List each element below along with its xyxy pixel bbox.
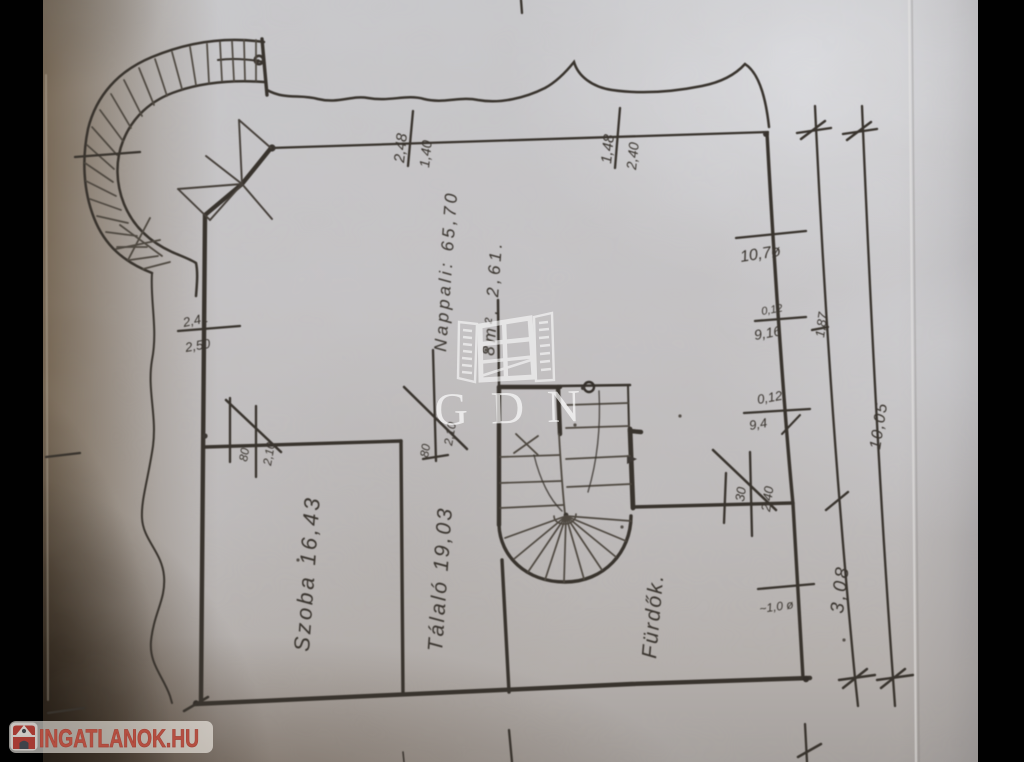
svg-text:9,4: 9,4 — [748, 415, 768, 433]
svg-text:1,40: 1,40 — [416, 139, 435, 168]
svg-text:2,48: 2,48 — [391, 132, 411, 164]
svg-text:INGATLANOK.HU: INGATLANOK.HU — [39, 725, 199, 753]
svg-text:1,48: 1,48 — [598, 133, 618, 164]
svg-text:80: 80 — [236, 447, 252, 463]
svg-text:30: 30 — [732, 485, 749, 502]
svg-text:GDN: GDN — [434, 380, 604, 435]
svg-text:80: 80 — [417, 443, 433, 459]
svg-text:2,40: 2,40 — [623, 141, 642, 171]
